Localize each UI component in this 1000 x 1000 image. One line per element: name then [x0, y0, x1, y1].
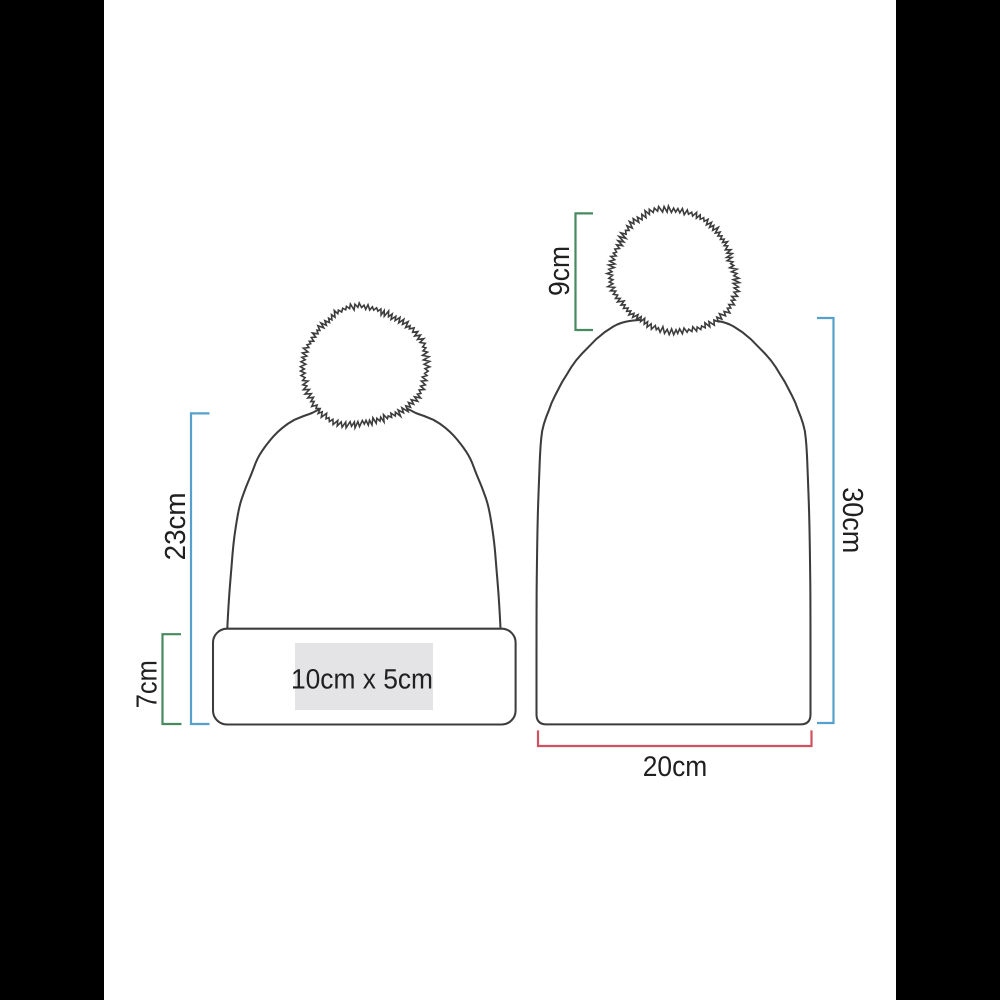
svg-text:9cm: 9cm	[544, 246, 576, 296]
svg-text:7cm: 7cm	[132, 660, 164, 708]
svg-text:23cm: 23cm	[160, 492, 192, 560]
svg-text:20cm: 20cm	[643, 751, 708, 783]
svg-text:30cm: 30cm	[836, 487, 868, 553]
svg-text:10cm x 5cm: 10cm x 5cm	[291, 663, 433, 694]
